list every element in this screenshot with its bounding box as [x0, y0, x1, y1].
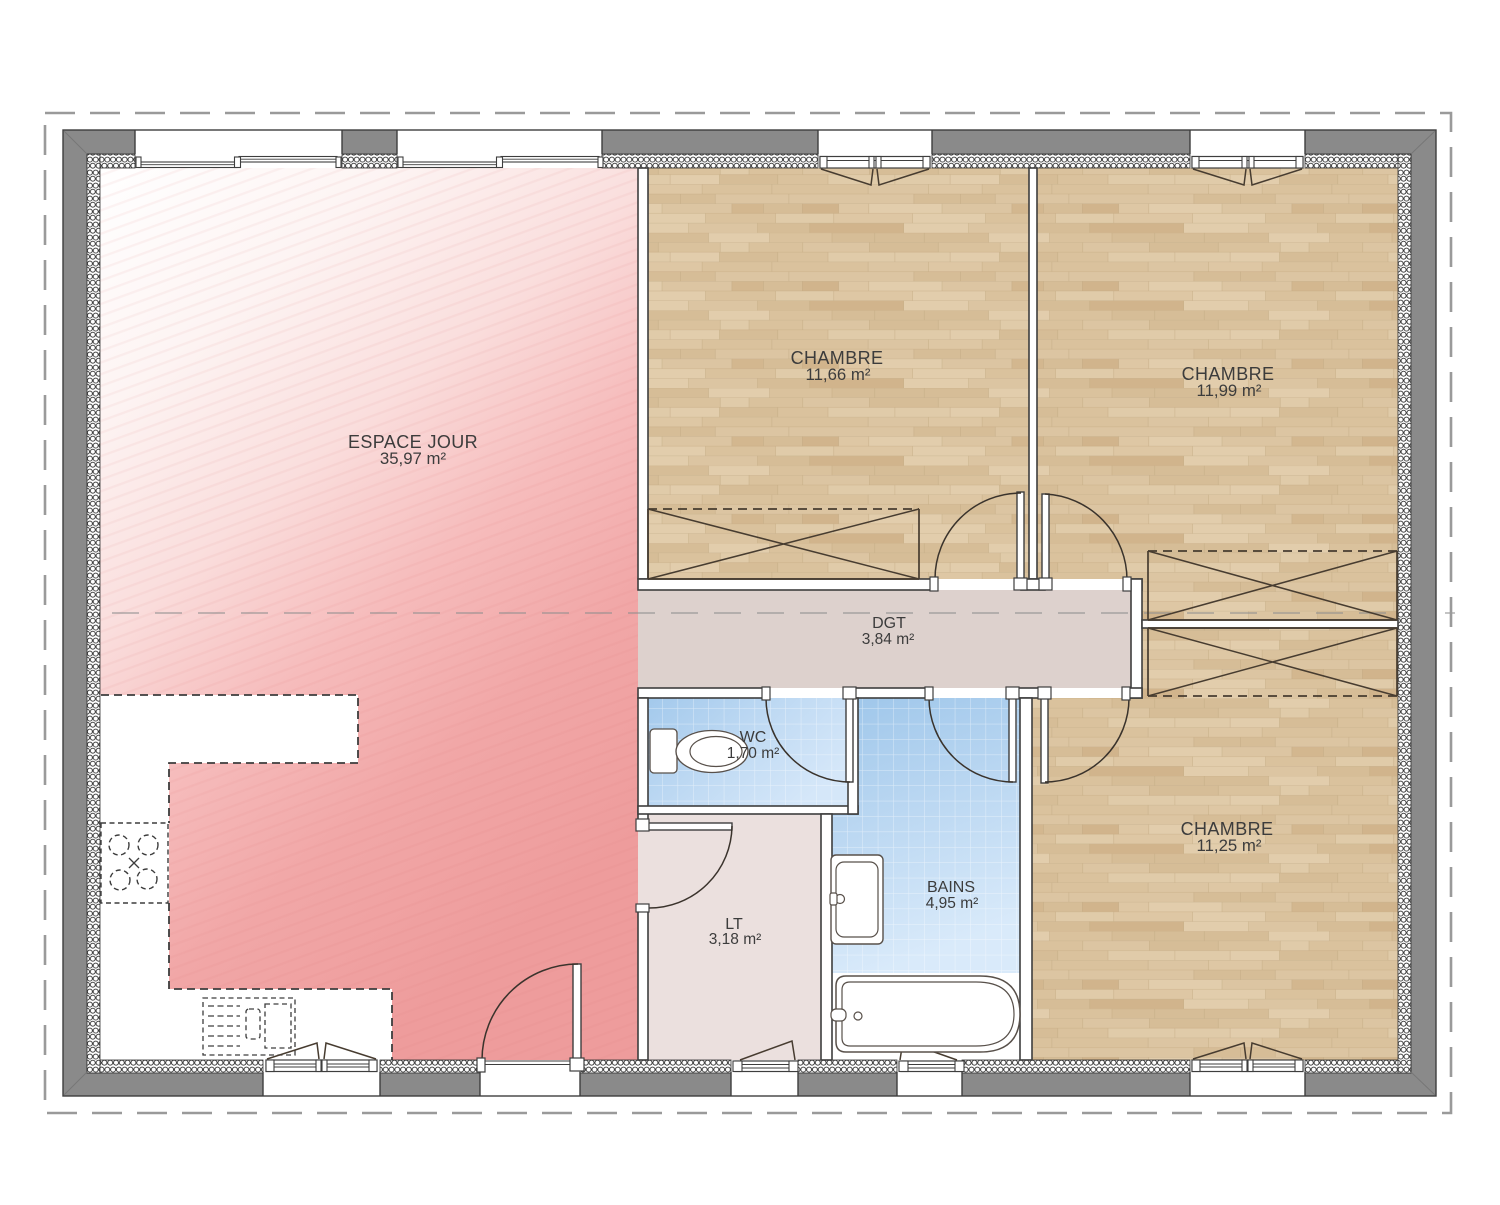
svg-text:3,18 m²: 3,18 m²: [709, 931, 762, 948]
svg-text:11,66 m²: 11,66 m²: [806, 365, 871, 384]
svg-text:3,84 m²: 3,84 m²: [862, 631, 915, 648]
svg-text:DGT: DGT: [872, 615, 906, 632]
svg-text:BAINS: BAINS: [927, 879, 975, 896]
svg-text:11,99 m²: 11,99 m²: [1197, 381, 1262, 400]
svg-text:WC: WC: [740, 729, 767, 746]
svg-text:1,70 m²: 1,70 m²: [727, 745, 780, 762]
svg-text:35,97 m²: 35,97 m²: [380, 449, 447, 468]
svg-text:4,95 m²: 4,95 m²: [926, 895, 979, 912]
svg-text:11,25 m²: 11,25 m²: [1197, 836, 1262, 855]
